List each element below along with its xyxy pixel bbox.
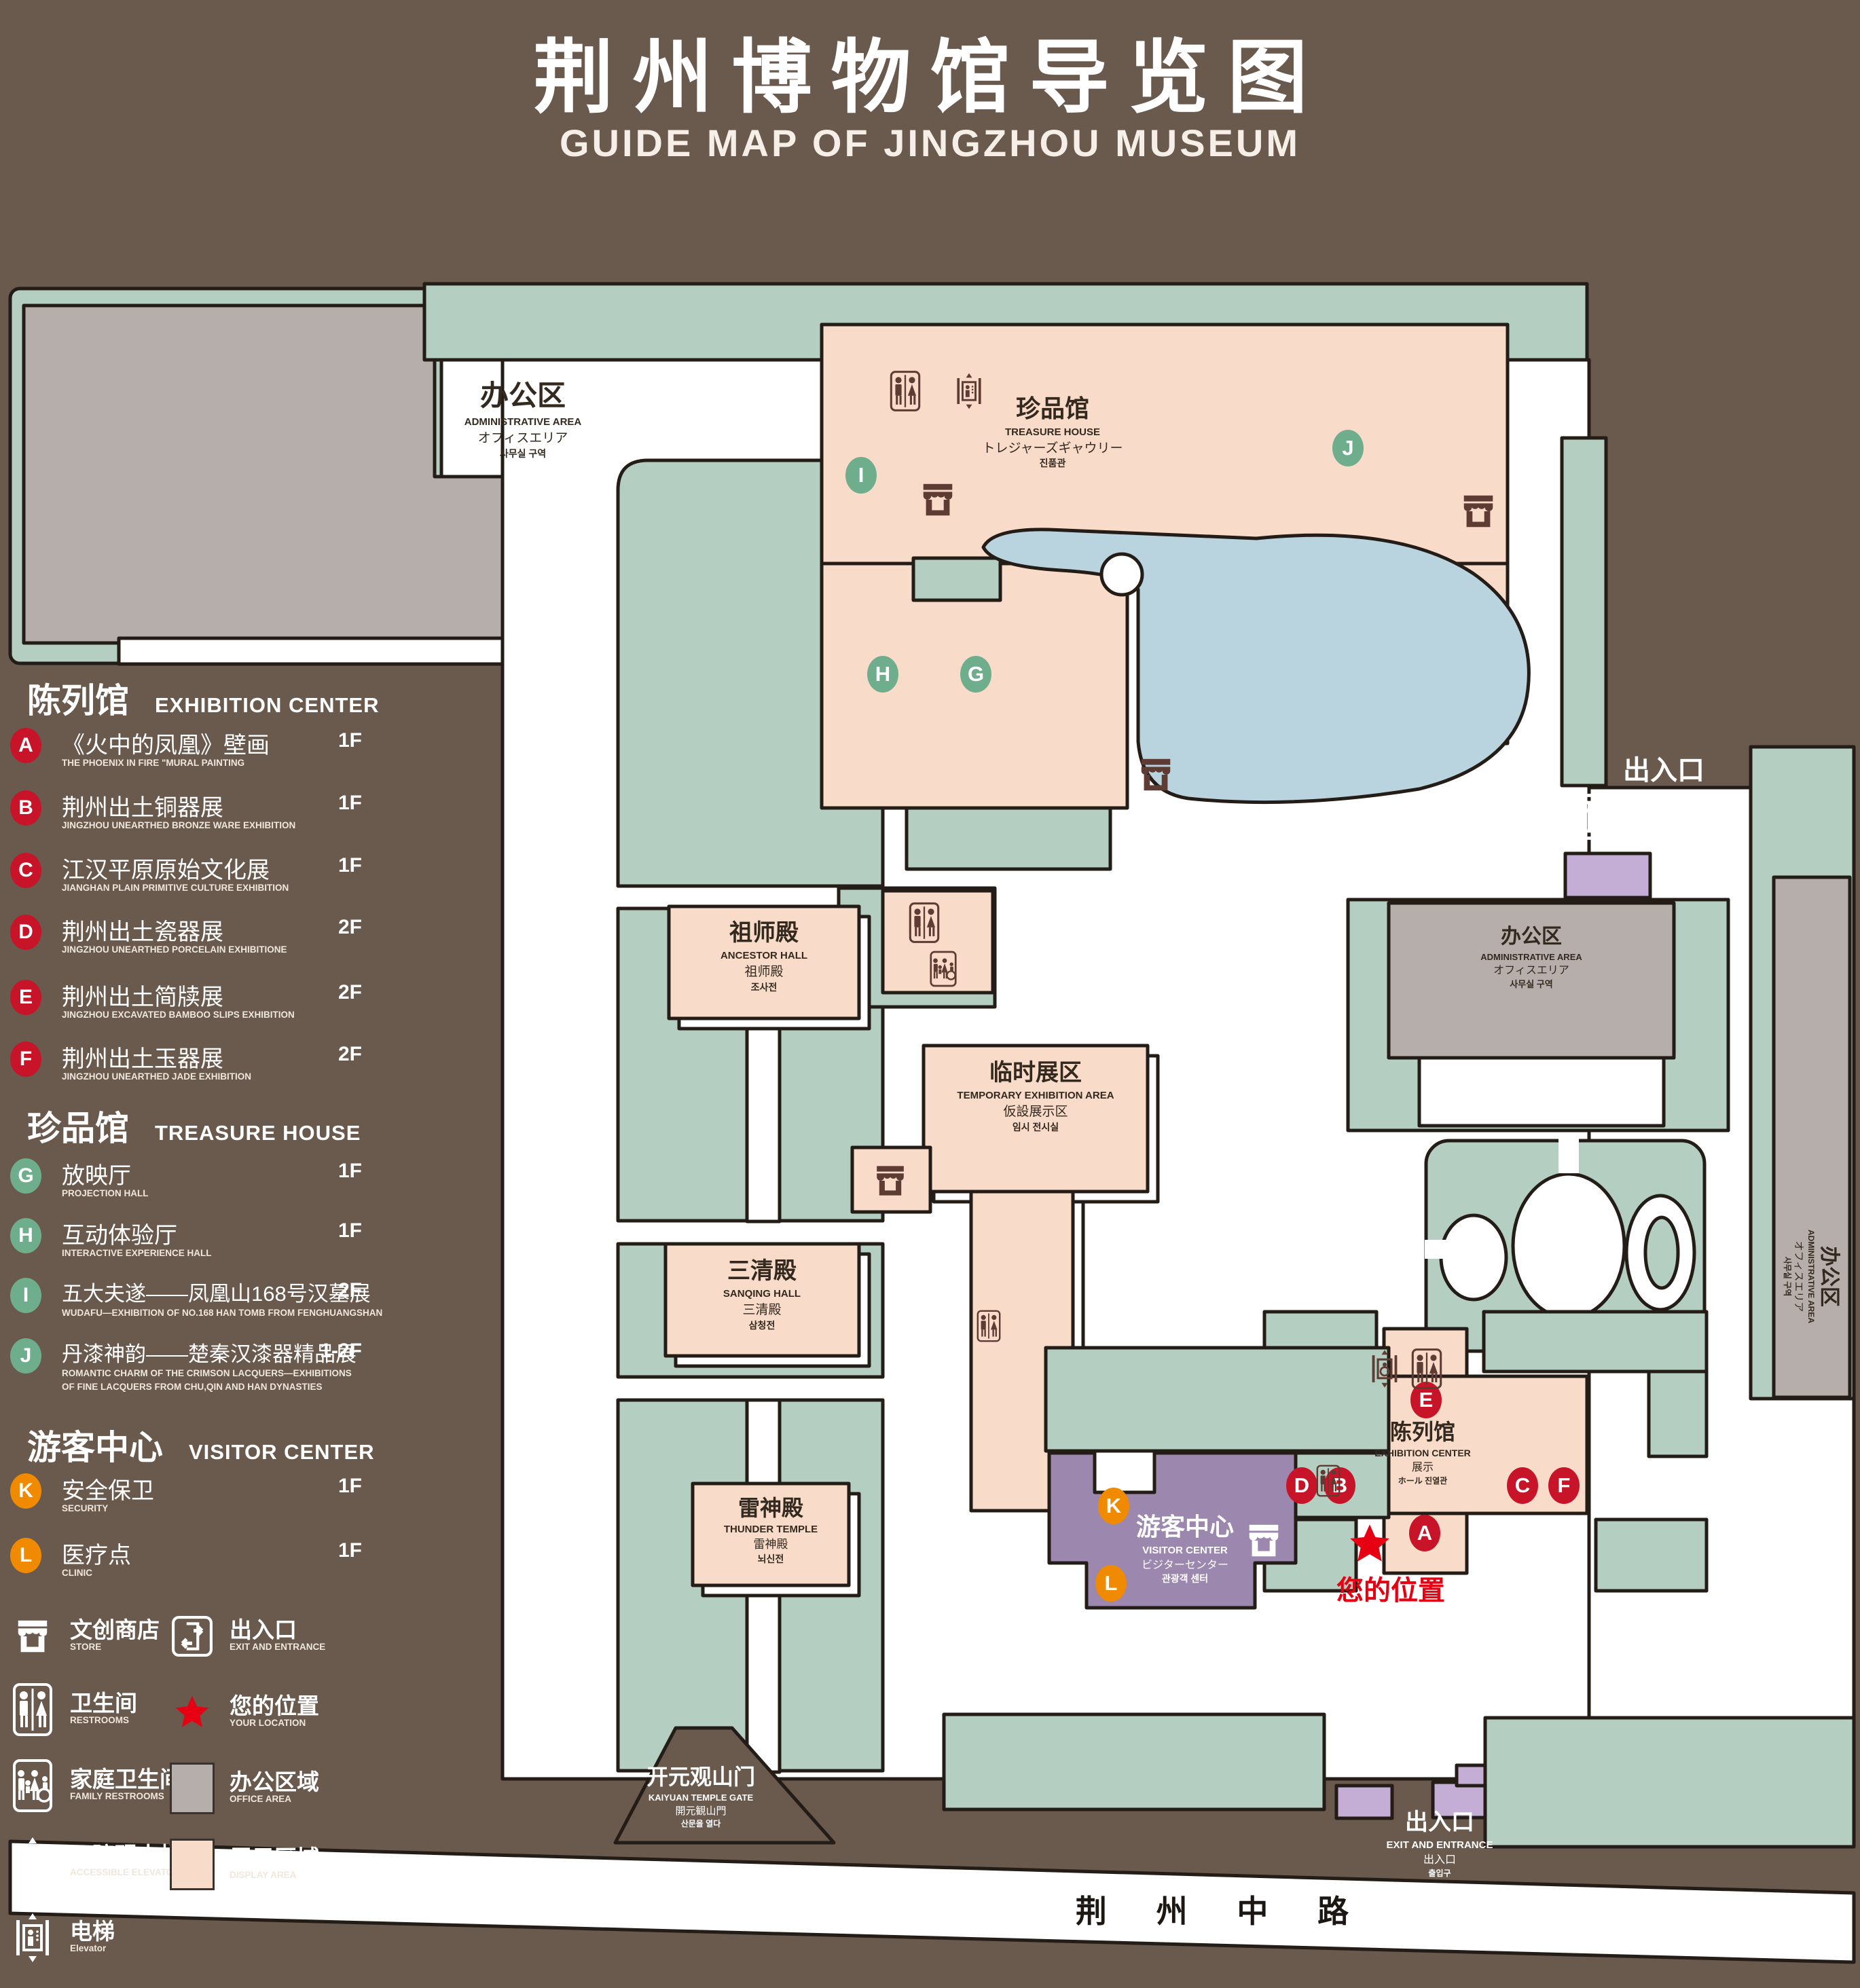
map-marker-c: C [1507,1467,1538,1504]
map-marker-j: J [1332,430,1364,466]
legend-item-l: L 医疗点 CLINIC 1F [10,1538,472,1600]
label-treasure-house: 珍品馆 TREASURE HOUSE トレジャーズギャウリー 진품관 [982,392,1123,470]
exit-entrance-icon [1559,793,1607,841]
restroom-icon [977,1309,1001,1343]
store-icon [1244,1521,1283,1560]
badge-g: G [10,1158,41,1194]
restroom-icon [1411,1348,1442,1390]
display-area-swatch [170,1839,215,1890]
restroom-icon [909,902,940,944]
legend-exit: 出入口EXIT AND ENTRANCE [170,1608,455,1676]
badge-i: I [10,1278,41,1313]
legend-elevator: 电梯Elevator [10,1909,295,1977]
badge-k: K [10,1473,41,1509]
office-area-swatch [170,1763,215,1814]
section-treasure-house: 珍品馆 TREASURE HOUSE [27,1101,489,1150]
store-icon [872,1162,909,1199]
map-marker-l: L [1095,1565,1127,1602]
your-location-label: 您的位置 [1336,1568,1445,1608]
badge-e: E [10,980,41,1015]
elevator-icon [12,1911,53,1965]
your-location-star-icon [174,1694,211,1731]
accessible-elevator-icon [12,1835,53,1889]
exit-entrance-icon [171,1615,213,1657]
legend-item-b: B 荆州出土铜器展 JINGZHOU UNEARTHED BRONZE WARE… [10,790,472,853]
map-marker-a: A [1409,1515,1440,1551]
legend-item-i: I 五大夫遂——凤凰山168号汉墓展 WUDAFU—EXHIBITION OF … [10,1278,472,1340]
badge-j: J [10,1338,41,1374]
map-marker-h: H [867,656,898,693]
legend-item-h: H 互动体验厅 INTERACTIVE EXPERIENCE HALL 1F [10,1218,472,1281]
label-kaiyuan-gate: 开元观山门 KAIYUAN TEMPLE GATE 開元観山門 산문을 열다 [646,1763,755,1829]
map-marker-k: K [1098,1488,1129,1524]
restroom-icon [12,1682,53,1737]
restroom-icon [1316,1464,1341,1498]
label-admin-middle: 办公区 ADMINISTRATIVE AREA オフィスエリア 사무실 구역 [1480,923,1582,990]
label-admin-east: 办公区 ADMINISTRATIVE AREA オフィスエリア 사무실 구역 [1781,1230,1842,1323]
legend-item-k: K 安全保卫 SECURITY 1F [10,1473,472,1536]
badge-l: L [10,1538,41,1573]
badge-c: C [10,853,41,888]
legend-item-e: E 荆州出土简牍展 JINGZHOU EXCAVATED BAMBOO SLIP… [10,980,472,1042]
road-name: 荆 州 中 路 [1076,1887,1369,1932]
store-icon [918,480,958,519]
label-exhibition-center: 陈列馆 EXHIBITION CENTER 展示 ホール 진열관 [1374,1418,1471,1486]
label-admin-northwest: 办公区 ADMINISTRATIVE AREA オフィスエリア 사무실 구역 [464,377,582,460]
badge-f: F [10,1042,41,1077]
section-exhibition-center: 陈列馆 EXHIBITION CENTER [27,674,489,722]
legend-your-location: 您的位置YOUR LOCATION [170,1684,455,1752]
label-visitor-center: 游客中心 VISITOR CENTER ビジターセンター 관광객 센터 [1136,1511,1234,1585]
badge-h: H [10,1218,41,1253]
label-exit-bottom: 出入口 EXIT AND ENTRANCE 出入口 출입구 [1387,1807,1493,1879]
label-ancestor-hall: 祖师殿 ANCESTOR HALL 祖师殿 조사전 [721,918,807,994]
label-exit-right: 出入口 EXIT AND ENTRANCE 出入口 출입구 [1600,752,1728,835]
restroom-icon [890,370,921,412]
label-temporary-exhibition: 临时展区 TEMPORARY EXHIBITION AREA 仮設展示区 임시 … [957,1058,1114,1134]
family-restroom-icon [12,1759,53,1813]
badge-a: A [10,728,41,763]
store-icon [13,1617,52,1656]
map-marker-g: G [960,656,991,693]
legend-item-c: C 江汉平原原始文化展 JIANGHAN PLAIN PRIMITIVE CUL… [10,853,472,915]
map-marker-f: F [1548,1467,1580,1504]
store-icon [1459,492,1498,531]
your-location-star-icon [1348,1522,1391,1566]
map-marker-d: D [1286,1467,1317,1504]
legend-display-area: 展示区域DISPLAY AREA [170,1836,455,1904]
label-sanqing-hall: 三清殿 SANQING HALL 三清殿 삼청전 [723,1256,801,1332]
section-visitor-center: 游客中心 VISITOR CENTER [27,1420,489,1469]
legend-office-area: 办公区域OFFICE AREA [170,1760,455,1828]
legend-item-g: G 放映厅 PROJECTION HALL 1F [10,1158,472,1221]
legend-item-f: F 荆州出土玉器展 JINGZHOU UNEARTHED JADE EXHIBI… [10,1042,472,1104]
legend-item-d: D 荆州出土瓷器展 JINGZHOU UNEARTHED PORCELAIN E… [10,915,472,977]
elevator-icon [954,370,984,412]
label-thunder-temple: 雷神殿 THUNDER TEMPLE 雷神殿 뇌신전 [724,1494,818,1566]
badge-d: D [10,915,41,950]
map-marker-i: I [845,457,877,494]
legend-item-a: A 《火中的凤凰》壁画 THE PHOENIX IN FIRE "MURAL P… [10,728,472,790]
store-icon [1136,755,1175,794]
legend-item-j: J 丹漆神韵——楚秦汉漆器精品展 ROMANTIC CHARM OF THE C… [10,1338,472,1401]
accessible-elevator-icon [1369,1348,1400,1390]
family-restroom-icon [929,951,958,987]
badge-b: B [10,790,41,826]
